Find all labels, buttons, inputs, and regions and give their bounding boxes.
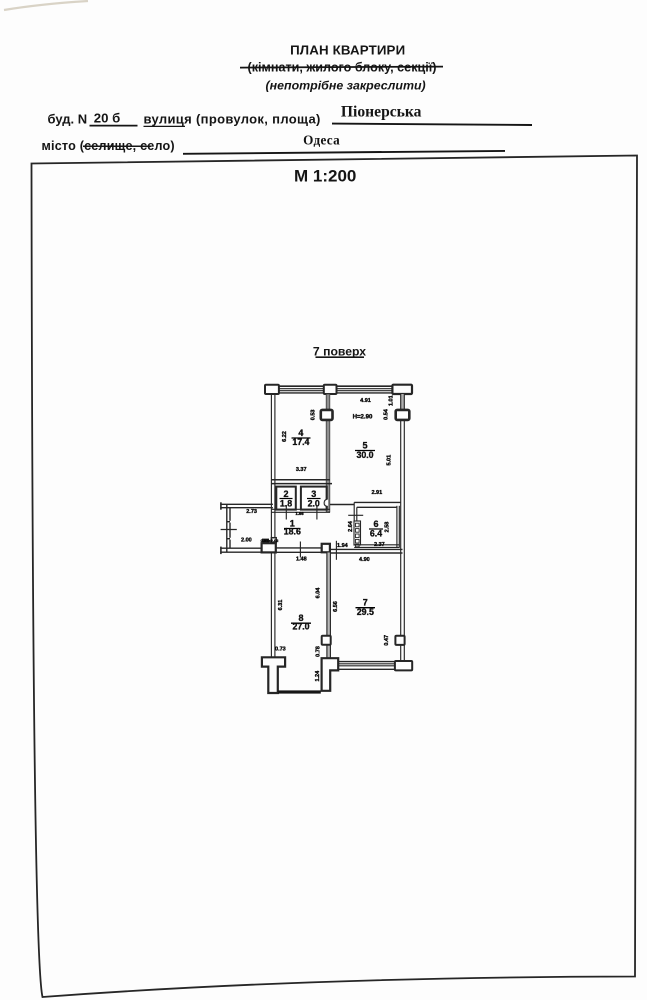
svg-text:1.94: 1.94: [337, 543, 349, 549]
svg-text:0.47: 0.47: [384, 635, 390, 646]
svg-text:2.0: 2.0: [308, 498, 320, 508]
svg-text:6.04: 6.04: [315, 587, 321, 599]
svg-text:4.91: 4.91: [360, 398, 371, 404]
svg-text:1.24: 1.24: [315, 670, 321, 682]
svg-text:1.8: 1.8: [280, 498, 292, 508]
svg-text:5.01: 5.01: [387, 455, 393, 466]
svg-text:2.00: 2.00: [241, 537, 252, 543]
svg-text:30.0: 30.0: [356, 450, 373, 460]
svg-text:0.78: 0.78: [316, 646, 322, 657]
svg-text:6.31: 6.31: [278, 600, 284, 611]
svg-text:(непотрібне закреслити): (непотрібне закреслити): [266, 79, 426, 93]
svg-text:27.0: 27.0: [292, 621, 309, 631]
svg-text:2.37: 2.37: [374, 542, 385, 548]
svg-text:1.48: 1.48: [296, 557, 307, 563]
svg-text:0.54: 0.54: [383, 408, 389, 420]
svg-text:Одеса: Одеса: [303, 133, 340, 148]
svg-text:6: 6: [373, 519, 378, 529]
svg-text:2.73: 2.73: [246, 509, 257, 515]
svg-text:7: 7: [363, 598, 368, 608]
svg-text:2.58: 2.58: [385, 522, 391, 533]
svg-text:0.53: 0.53: [311, 410, 317, 421]
svg-text:4.90: 4.90: [359, 557, 370, 563]
svg-text:М 1:200: М 1:200: [294, 166, 356, 185]
svg-text:ПЛАН КВАРТИРИ: ПЛАН КВАРТИРИ: [290, 43, 405, 58]
svg-text:6.22: 6.22: [282, 431, 288, 442]
svg-text:6.56: 6.56: [333, 601, 339, 612]
svg-text:1.66: 1.66: [295, 511, 304, 516]
svg-text:0.91x2.02: 0.91x2.02: [261, 538, 280, 543]
svg-text:0.73: 0.73: [275, 646, 286, 652]
svg-text:буд. N: буд. N: [48, 112, 88, 127]
svg-text:18.6: 18.6: [284, 527, 301, 537]
svg-text:6.4: 6.4: [370, 529, 382, 539]
svg-text:Піонерська: Піонерська: [341, 103, 422, 120]
svg-text:2.64: 2.64: [348, 520, 354, 532]
svg-text:Н=2.90: Н=2.90: [353, 414, 373, 421]
svg-text:вулиця (провулок, площа): вулиця (провулок, площа): [144, 112, 321, 127]
svg-text:5: 5: [362, 440, 367, 450]
svg-text:29.5: 29.5: [357, 607, 374, 617]
svg-text:7 поверх: 7 поверх: [313, 345, 366, 359]
svg-text:17.4: 17.4: [292, 437, 309, 447]
svg-text:20 б: 20 б: [94, 111, 120, 126]
svg-text:3.37: 3.37: [296, 467, 307, 473]
svg-text:1.01: 1.01: [388, 395, 394, 406]
svg-text:2.91: 2.91: [371, 490, 382, 496]
